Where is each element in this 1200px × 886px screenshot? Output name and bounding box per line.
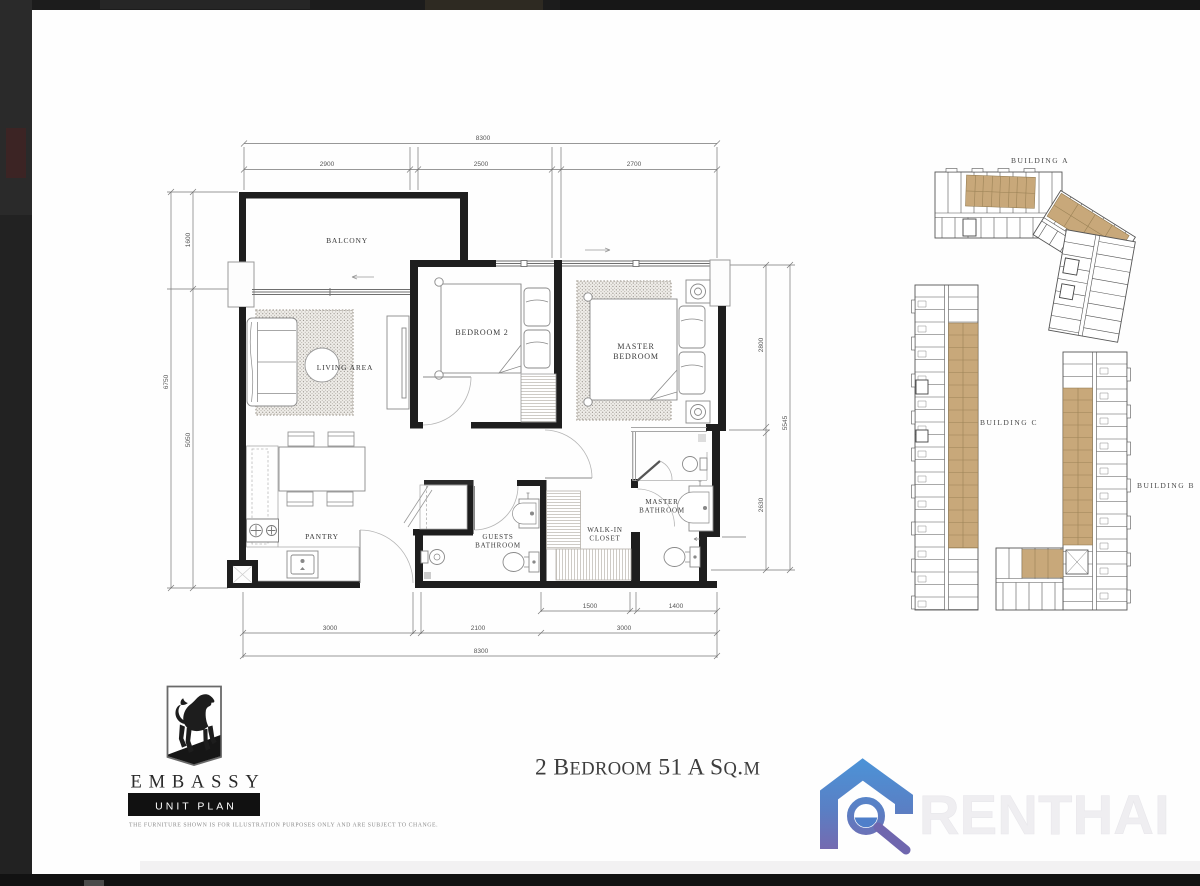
svg-text:MASTER: MASTER xyxy=(617,342,654,351)
svg-text:EMBASSY: EMBASSY xyxy=(131,773,266,793)
svg-text:BEDROOM 2: BEDROOM 2 xyxy=(455,328,508,337)
svg-text:BUILDING A: BUILDING A xyxy=(1011,156,1069,165)
svg-text:PANTRY: PANTRY xyxy=(305,532,339,541)
svg-text:CLOSET: CLOSET xyxy=(589,535,620,543)
svg-text:1600: 1600 xyxy=(185,232,192,247)
svg-text:UNIT PLAN: UNIT PLAN xyxy=(155,801,237,813)
svg-text:8300: 8300 xyxy=(476,135,491,142)
svg-text:2100: 2100 xyxy=(471,625,486,632)
svg-text:BATHROOM: BATHROOM xyxy=(475,542,521,550)
svg-text:2800: 2800 xyxy=(758,337,765,352)
svg-text:2500: 2500 xyxy=(474,161,489,168)
svg-text:BALCONY: BALCONY xyxy=(326,236,368,245)
svg-text:LIVING AREA: LIVING AREA xyxy=(317,363,374,372)
svg-text:BUILDING B: BUILDING B xyxy=(1137,481,1195,490)
svg-text:8300: 8300 xyxy=(474,648,489,655)
svg-text:5050: 5050 xyxy=(185,432,192,447)
svg-text:MASTER: MASTER xyxy=(645,498,678,506)
svg-text:1500: 1500 xyxy=(583,603,598,610)
svg-text:6750: 6750 xyxy=(163,374,170,389)
svg-text:5545: 5545 xyxy=(782,415,789,430)
svg-text:BUILDING C: BUILDING C xyxy=(980,418,1038,427)
svg-text:3000: 3000 xyxy=(617,625,632,632)
svg-text:WALK-IN: WALK-IN xyxy=(587,526,623,534)
svg-text:2630: 2630 xyxy=(758,497,765,512)
svg-text:GUESTS: GUESTS xyxy=(482,533,513,541)
svg-text:BEDROOM: BEDROOM xyxy=(613,352,659,361)
svg-text:1400: 1400 xyxy=(669,603,684,610)
svg-text:THE FURNITURE SHOWN IS FOR ILL: THE FURNITURE SHOWN IS FOR ILLUSTRATION … xyxy=(129,823,438,829)
svg-text:RENTHAI: RENTHAI xyxy=(919,783,1170,846)
svg-text:2700: 2700 xyxy=(627,161,642,168)
svg-text:BATHROOM: BATHROOM xyxy=(639,507,685,515)
svg-text:3000: 3000 xyxy=(323,625,338,632)
svg-text:2900: 2900 xyxy=(320,161,335,168)
